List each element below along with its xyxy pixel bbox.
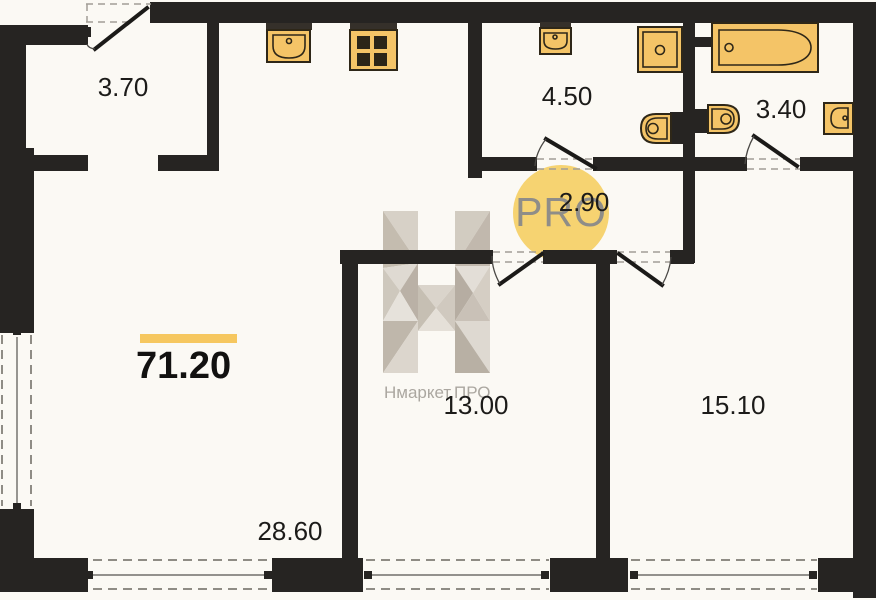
- total-area-value: 71.20: [136, 345, 231, 388]
- labels-layer: 3.70 4.50 3.40 2.90 13.00 15.10 28.60 71…: [0, 0, 876, 600]
- area-label-bathroom-large: 4.50: [522, 81, 612, 112]
- area-label-living-kitchen: 28.60: [245, 516, 335, 547]
- total-area-accent-bar: [140, 334, 237, 343]
- floor-plan: PRO Нмаркет.ПРО: [0, 0, 876, 600]
- area-label-bedroom-right: 15.10: [688, 390, 778, 421]
- area-label-bedroom-left: 13.00: [431, 390, 521, 421]
- area-label-entrance-hall: 3.70: [78, 72, 168, 103]
- area-label-bathroom-small: 3.40: [736, 94, 826, 125]
- area-label-corridor: 2.90: [539, 187, 629, 218]
